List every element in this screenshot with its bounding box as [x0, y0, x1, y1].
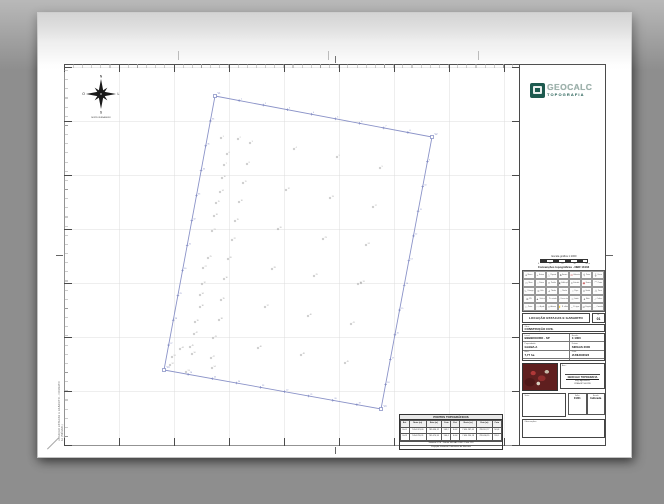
convention-cell: ▲Vértice [535, 295, 547, 303]
signature-line [565, 374, 600, 375]
survey-point-label: 53 [188, 370, 190, 372]
edge-stake-label: 1 [241, 98, 243, 100]
convention-label: Córrego [527, 290, 533, 292]
geocalc-logo-icon [530, 83, 545, 98]
plan-sheet: LOCAÇÃO ESTACAS E GABARITO - FORMATO A1 … [37, 12, 632, 458]
vertex-label: V2 [435, 133, 439, 136]
sheet-number-box: Fl. 01 [592, 313, 605, 323]
visto-label: Visto: [525, 395, 564, 398]
survey-point-label: 7 [226, 163, 227, 165]
conventions-title: Convenções topográficas - NBR 13133 [522, 265, 605, 269]
survey-point-label: 21 [214, 229, 216, 231]
fold-mark [478, 51, 479, 60]
signature-box: Ass.: GEOCALC TOPOGRAFIA Eng. Agrimensor… [560, 363, 605, 389]
convention-cell: ▭Muro [523, 279, 535, 287]
center-mark-top [335, 56, 336, 63]
convention-label: Rocha [562, 290, 567, 292]
edge-stake-label: 8 [409, 130, 411, 132]
convention-cell: ☖Torre [592, 287, 604, 295]
convention-label: Cerca [597, 274, 602, 276]
convention-symbol: ◉ [583, 282, 586, 285]
field-value: BEBEDOURO - SP [525, 337, 568, 340]
convention-cell: ◌Rocha [558, 287, 570, 295]
vertex-label: V4 [167, 366, 171, 369]
points-row: E-037.654.255,31789.470,93560,4E-047.654… [401, 434, 502, 441]
survey-point-label: 18 [216, 214, 218, 216]
edge-stake-label: 29 [180, 293, 183, 295]
edge-stake-label: 19 [358, 402, 361, 404]
convention-cell: +Estaca [535, 271, 547, 279]
edge-stake-label: 15 [401, 308, 404, 310]
convention-cell: ≈Curva nível [558, 295, 570, 303]
survey-point-label: 36 [202, 305, 204, 307]
convention-cell: ⊓Portão [546, 279, 558, 287]
survey-point-label: 28 [274, 267, 276, 269]
convention-symbol: ☖ [595, 290, 598, 293]
edge-stake-label: 32 [193, 218, 196, 220]
survey-point-label: 52 [172, 363, 174, 365]
survey-point-label: 46 [260, 346, 262, 348]
edge-stake-label: 27 [170, 343, 173, 345]
points-cell: E-02 [451, 427, 460, 434]
edge-stake-label: 12 [415, 234, 418, 236]
survey-plot: 1234567891011121314151617181920212223242… [64, 64, 520, 446]
edge-stake-label: 21 [310, 394, 313, 396]
survey-point-label: 15 [218, 201, 220, 203]
convention-label: Portão [551, 282, 556, 284]
points-cell: 560,4 [442, 434, 451, 441]
convention-symbol: ▭ [525, 282, 528, 285]
edge-stake-label: 16 [397, 333, 400, 335]
convention-cell: ╍Limite [569, 295, 581, 303]
convention-cell: YAntena [546, 303, 558, 311]
convention-cell: ●Marco [523, 271, 535, 279]
edge-stake-label: 5 [337, 117, 339, 119]
convention-label: Vala [540, 290, 543, 292]
observations-box: Observações: [522, 419, 605, 438]
convention-cell: ╌Divisa [535, 279, 547, 287]
survey-point-label: 39 [197, 320, 199, 322]
survey-point-label: 45 [192, 345, 194, 347]
convention-label: R. elétrica [562, 306, 569, 308]
convention-label: Limite [574, 298, 579, 300]
observations-label: Observações: [525, 421, 603, 424]
convention-label: Poço [574, 290, 578, 292]
points-cell: 7.654.287,45 [459, 427, 476, 434]
convention-cell: ~R. água [569, 303, 581, 311]
survey-point-label: 19 [237, 219, 239, 221]
titleblock-fields: Local:BEBEDOURO - SPPropriedade:GLEBA AÁ… [522, 333, 605, 361]
convention-cell: ⚲Poste [581, 271, 593, 279]
survey-point-label: 5 [339, 155, 340, 157]
points-cell: 789.456,12 [426, 427, 441, 434]
convention-label: Marco [528, 274, 533, 276]
convention-cell: ∷Pasto [523, 303, 535, 311]
survey-point-label: 12 [288, 188, 290, 190]
convention-cell: △Piquete [546, 271, 558, 279]
convention-label: Antena [551, 306, 556, 308]
points-cell: 559,1 [492, 434, 501, 441]
survey-point-label: 24 [368, 243, 370, 245]
points-cell: 789.470,93 [426, 434, 441, 441]
convention-label: Torre [598, 290, 602, 292]
convention-label: Piquete [551, 274, 557, 276]
survey-point-label: 16 [241, 200, 243, 202]
edge-stake-label: 6 [361, 121, 363, 123]
logo: GEOCALC TOPOGRAFIA [530, 83, 606, 107]
convention-label: Muro [529, 282, 533, 284]
convention-label: Curva nível [560, 298, 569, 300]
stamp-block: GEOCALC TOPOGRAFIA Eng. Agrimensor CREA-… [562, 376, 603, 386]
survey-point-label: 30 [226, 277, 228, 279]
points-cell: 7.654.230,18 [459, 434, 476, 441]
survey-point-label: 48 [303, 353, 305, 355]
survey-point-label: 11 [245, 181, 247, 183]
survey-point-label: 10 [224, 176, 226, 178]
survey-point-label: 25 [210, 256, 212, 258]
survey-point-label: 54 [214, 366, 216, 368]
survey-point-label: 23 [325, 237, 327, 239]
logo-name: GEOCALC [547, 83, 592, 92]
convention-cell: ⊘Esgoto [581, 303, 593, 311]
convention-symbol: ▲ [536, 298, 539, 301]
survey-point-label: 17 [375, 205, 377, 207]
convention-label: RN [529, 298, 531, 300]
convention-symbol: … [593, 306, 596, 309]
edge-stake-label: 22 [286, 389, 289, 391]
edge-stake-label: 35 [207, 144, 210, 146]
survey-point-label: 26 [230, 257, 232, 259]
convention-symbol: ⌒ [594, 282, 597, 285]
survey-point-label: 4 [296, 147, 297, 149]
convention-label: Grade [585, 290, 590, 292]
points-cell: E-01 [401, 427, 410, 434]
survey-point-label: 13 [332, 196, 334, 198]
convention-cell: ╫Cerca [592, 271, 604, 279]
convention-label: Estrada [573, 282, 579, 284]
edge-stake-label: 23 [262, 385, 265, 387]
convention-cell: #Grade [581, 287, 593, 295]
survey-point-label: 3 [252, 141, 253, 143]
edge-stake-label: 31 [189, 243, 192, 245]
survey-point-label: 34 [202, 293, 204, 295]
survey-point-label: 27 [205, 266, 207, 268]
aerial-location-image [522, 363, 558, 391]
convention-label: Árvore [562, 274, 567, 276]
survey-point-label: 33 [360, 282, 362, 284]
titleblock-title: LOCAÇÃO ESTACAS E GABARITO [522, 313, 590, 323]
vertex-marker [431, 136, 434, 139]
edge-stake-label: 24 [238, 381, 241, 383]
edge-stake-label: 20 [334, 398, 337, 400]
points-table-footer-2: Projeção Universal Transversa de Mercato… [400, 445, 502, 449]
edge-stake-label: 10 [424, 184, 427, 186]
points-cell: E-03 [401, 434, 410, 441]
titleblock-field: Propriedade:GLEBA A [523, 342, 569, 350]
convention-cell: ∿Córrego [523, 287, 535, 295]
convention-cell: ⊿Talude [546, 287, 558, 295]
titleblock-field: Local:BEBEDOURO - SP [523, 334, 569, 342]
points-table-grid: Est.Norte (m)Este (m)CotaEst.Norte (m)Es… [400, 420, 502, 440]
survey-point-label: 37 [267, 305, 269, 307]
survey-point-label: 2 [240, 137, 241, 139]
convention-cell: …Caminho [592, 303, 604, 311]
survey-point-label: 49 [347, 361, 349, 363]
survey-point-label: 42 [196, 332, 198, 334]
mini-value: Indicada [588, 397, 605, 400]
fold-mark [328, 51, 329, 60]
points-cell: E-04 [451, 434, 460, 441]
convention-cell: ∴Cultura [592, 295, 604, 303]
center-mark-right [606, 255, 613, 256]
points-cell: 561,8 [492, 427, 501, 434]
mini-value: 01/01 [569, 397, 586, 400]
convention-label: Divisa [539, 282, 544, 284]
field-value: 1:1000 [572, 337, 603, 340]
convention-label: Bueiro [586, 282, 591, 284]
edge-stake-label: 13 [410, 258, 413, 260]
logo-subtitle: TOPOGRAFIA [547, 92, 592, 97]
convention-label: Hidrante [573, 274, 579, 276]
field-value: 7,77 ha [525, 354, 568, 357]
mini-field: Folha01/01 [568, 393, 587, 415]
center-mark-left [56, 255, 63, 256]
convention-cell: ⊕RN [523, 295, 535, 303]
survey-point-label: 6 [229, 152, 230, 154]
vertex-label: V3 [384, 405, 388, 408]
survey-point-label: 41 [353, 322, 355, 324]
convention-cell: ≋Vala [535, 287, 547, 295]
mini-fields: Folha01/01EscalaIndicada [568, 393, 605, 415]
titleblock-field: Datum:SIRGAS 2000 [570, 342, 604, 350]
convention-symbol: ▣ [558, 282, 561, 285]
edge-stake-label: 7 [385, 126, 387, 128]
edge-stake-label: 34 [203, 169, 206, 171]
titleblock-field: Escala:1:1000 [570, 334, 604, 342]
convention-label: Pt. cotado [549, 298, 557, 300]
field-value: SIRGAS 2000 [572, 346, 603, 349]
edge-stake-label: 25 [214, 376, 217, 378]
edge-stake-label: 17 [392, 357, 395, 359]
obra-field: Obra: CONSTRUÇÃO CIVIL [522, 324, 605, 332]
survey-point-label: 38 [221, 318, 223, 320]
convention-label: Pasto [528, 306, 532, 308]
survey-point-label: 43 [215, 336, 217, 338]
convention-cell: ⌒Ponte [592, 279, 604, 287]
points-row: E-017.654.321,09789.456,12563,2E-027.654… [401, 427, 502, 434]
edge-stake-label: 33 [198, 193, 201, 195]
survey-point-label: 14 [222, 190, 224, 192]
vertex-label: V1 [218, 92, 222, 95]
convention-cell: ⊙Hidrante [569, 271, 581, 279]
vertex-marker [380, 408, 383, 411]
sheet-number-value: 01 [593, 317, 604, 321]
survey-point-label: 35 [223, 298, 225, 300]
convention-symbol: ⚡ [558, 306, 562, 309]
edge-stake-label: 2 [265, 103, 267, 105]
edge-stake-label: 14 [406, 283, 409, 285]
edge-stake-label: 26 [190, 372, 193, 374]
convention-cell: ⚡R. elétrica [558, 303, 570, 311]
convention-label: Açude [540, 306, 545, 308]
survey-point-label: 20 [280, 227, 282, 229]
convention-label: Edificação [561, 282, 569, 284]
convention-label: Talude [551, 290, 556, 292]
survey-point-label: 51 [174, 355, 176, 357]
edge-stake-label: 28 [175, 318, 178, 320]
survey-point-label: 29 [316, 274, 318, 276]
field-value: JUNHO/2023 [572, 354, 603, 357]
convention-label: Poste [586, 274, 590, 276]
survey-point-label: 47 [213, 356, 215, 358]
survey-point-label: 32 [204, 282, 206, 284]
convention-cell: ♠Mata [581, 295, 593, 303]
visto-box: Visto: [522, 393, 566, 417]
survey-point-label: 31 [363, 281, 365, 283]
conventions-block: Convenções topográficas - NBR 13133 ●Mar… [522, 265, 605, 312]
vertex-marker [163, 369, 166, 372]
convention-label: Ponte [598, 282, 602, 284]
edge-stake-label: 36 [212, 119, 215, 121]
titleblock-field: Data:JUNHO/2023 [570, 351, 604, 359]
points-cell: 789.430,55 [477, 434, 492, 441]
convention-cell: ◠Açude [535, 303, 547, 311]
convention-cell: ◉Bueiro [581, 279, 593, 287]
convention-label: Mata [586, 298, 590, 300]
convention-cell: ○Poço [569, 287, 581, 295]
center-mark-bottom [335, 447, 336, 454]
survey-point-label: 9 [382, 166, 383, 168]
survey-point-label: 44 [182, 347, 184, 349]
convention-label: Estaca [539, 274, 544, 276]
convention-cell: ♣Árvore [558, 271, 570, 279]
vertex-marker [214, 95, 217, 98]
conventions-grid: ●Marco+Estaca△Piquete♣Árvore⊙Hidrante⚲Po… [522, 270, 605, 312]
convention-label: Cultura [597, 298, 602, 300]
edge-stake-label: 30 [184, 268, 187, 270]
points-cell: 789.512,77 [477, 427, 492, 434]
points-table: PONTOS TOPOGRÁFICOS Est.Norte (m)Este (m… [399, 414, 503, 450]
survey-point-label: 22 [234, 238, 236, 240]
mini-field: EscalaIndicada [587, 393, 606, 415]
points-cell: 7.654.321,09 [409, 427, 426, 434]
convention-label: Vértice [540, 298, 545, 300]
points-cell: 7.654.255,31 [409, 434, 426, 441]
titleblock-field: Área:7,77 ha [523, 351, 569, 359]
convention-cell: ·Pt. cotado [546, 295, 558, 303]
field-value: GLEBA A [525, 346, 568, 349]
edge-stake-label: 3 [289, 107, 291, 109]
signature-label: Ass.: [562, 365, 603, 368]
survey-point-label: 8 [249, 162, 250, 164]
edge-stake-label: 9 [429, 160, 431, 162]
fold-mark [178, 51, 179, 60]
convention-label: Caminho [597, 306, 604, 308]
survey-point-label: 50 [194, 352, 196, 354]
edge-stake-label: 4 [313, 112, 315, 114]
convention-symbol: ◠ [536, 306, 539, 309]
stamp-crea: CREA-SP 50612/D [562, 383, 603, 386]
edge-stake-label: 18 [387, 382, 390, 384]
convention-label: Esgoto [586, 306, 591, 308]
edge-stake-label: 11 [420, 209, 423, 211]
convention-label: R. água [573, 306, 579, 308]
convention-cell: ▣Edificação [558, 279, 570, 287]
survey-point-label: 1 [223, 136, 224, 138]
survey-point-label: 40 [310, 314, 312, 316]
obra-value: CONSTRUÇÃO CIVIL [525, 328, 603, 331]
convention-cell: ≡Estrada [569, 279, 581, 287]
graphic-scale-label: Escala gráfica 1:1000 [536, 255, 592, 258]
points-cell: 563,2 [442, 427, 451, 434]
boundary-polygon [164, 96, 432, 409]
